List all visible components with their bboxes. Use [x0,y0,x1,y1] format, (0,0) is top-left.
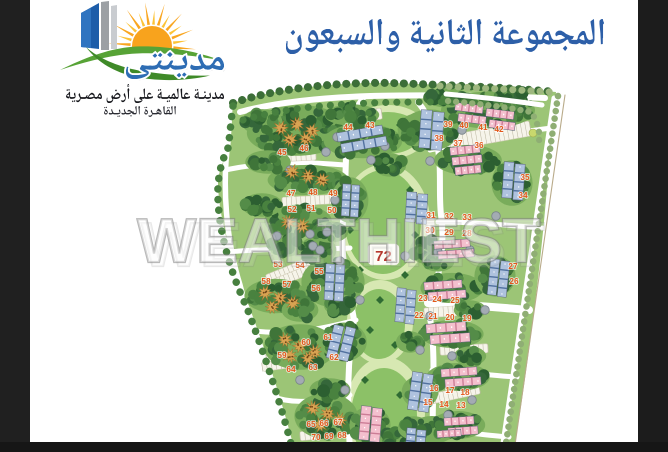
svg-text:63: 63 [308,362,318,372]
svg-text:24: 24 [432,294,442,304]
svg-text:64: 64 [286,364,296,374]
svg-text:48: 48 [308,187,318,197]
svg-text:59: 59 [277,350,287,360]
svg-text:17: 17 [445,385,455,395]
svg-text:23: 23 [418,293,428,303]
svg-text:WEALTHIEST: WEALTHIEST [137,207,540,276]
svg-text:57: 57 [282,279,292,289]
svg-text:60: 60 [301,337,311,347]
svg-text:49: 49 [328,188,338,198]
svg-text:42: 42 [494,124,504,134]
svg-text:61: 61 [323,332,333,342]
svg-text:20: 20 [445,312,455,322]
svg-text:34: 34 [518,190,528,200]
svg-text:39: 39 [443,119,453,129]
svg-text:16: 16 [429,383,439,393]
svg-text:21: 21 [428,311,438,321]
svg-text:19: 19 [462,313,472,323]
svg-text:47: 47 [286,188,296,198]
svg-text:13: 13 [456,400,466,410]
svg-text:18: 18 [460,387,470,397]
svg-text:22: 22 [414,310,424,320]
svg-text:66: 66 [319,418,329,428]
svg-text:56: 56 [311,283,321,293]
svg-text:67: 67 [333,417,343,427]
svg-text:37: 37 [453,138,463,148]
svg-text:69: 69 [324,431,334,441]
svg-text:43: 43 [365,120,375,130]
svg-text:70: 70 [311,432,321,442]
svg-text:44: 44 [343,122,353,132]
svg-text:46: 46 [299,143,309,153]
svg-text:36: 36 [474,140,484,150]
svg-text:40: 40 [459,120,469,130]
svg-text:38: 38 [434,133,444,143]
svg-text:14: 14 [439,399,449,409]
svg-text:68: 68 [337,430,347,440]
svg-text:45: 45 [277,147,287,157]
svg-text:35: 35 [520,172,530,182]
svg-text:62: 62 [329,352,339,362]
svg-text:65: 65 [306,419,316,429]
svg-text:41: 41 [478,122,488,132]
svg-text:25: 25 [450,295,460,305]
svg-text:15: 15 [423,397,433,407]
